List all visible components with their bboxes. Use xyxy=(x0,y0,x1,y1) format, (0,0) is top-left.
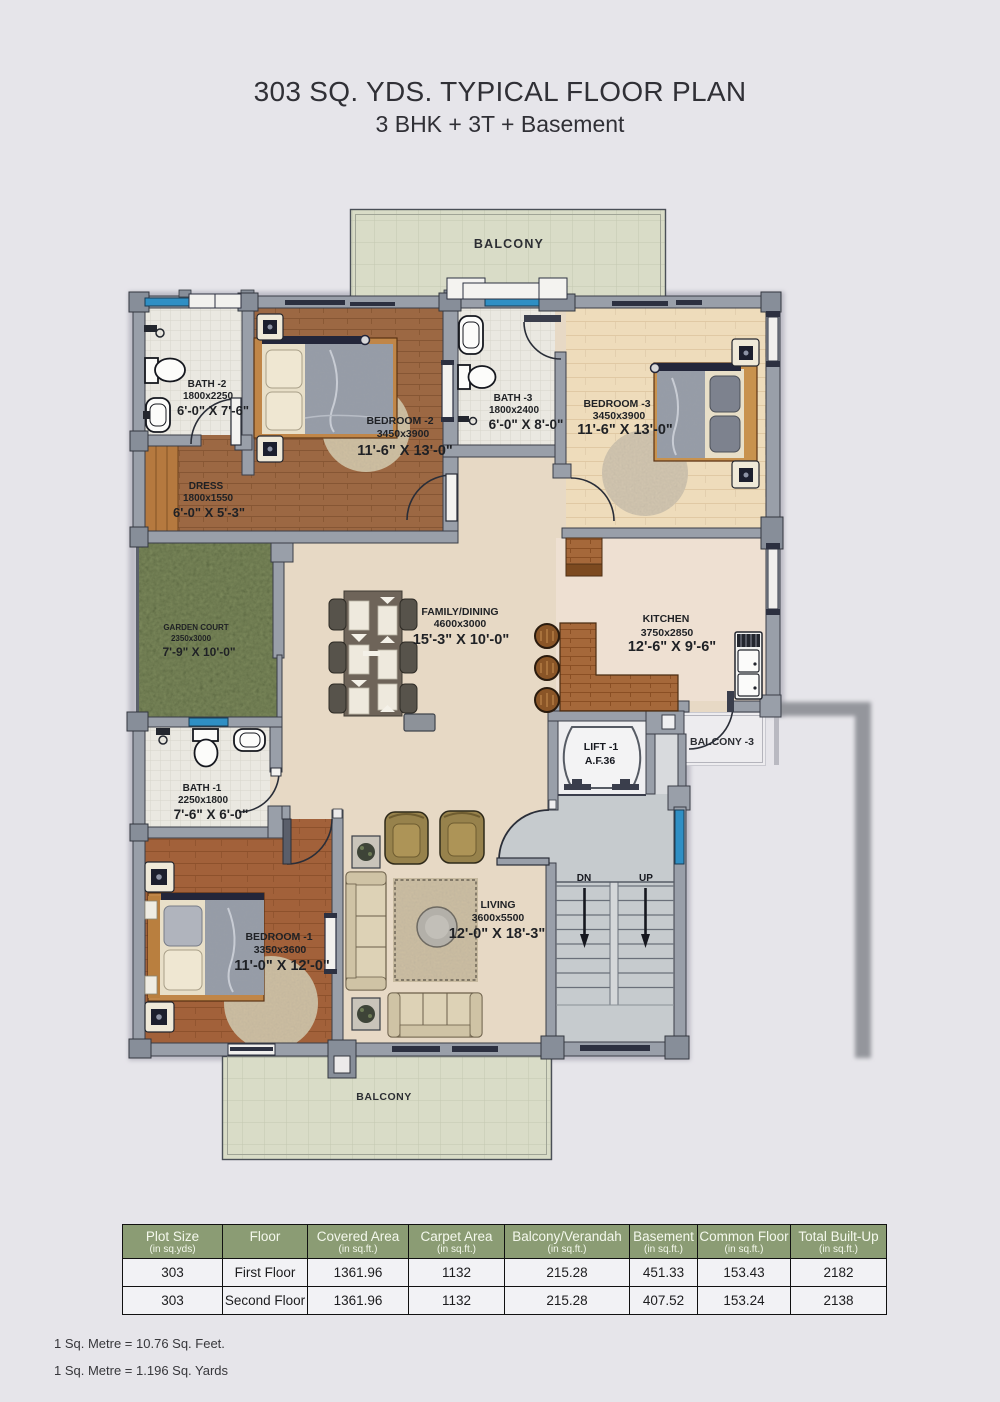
svg-text:15'-3" X 10'-0": 15'-3" X 10'-0" xyxy=(413,632,509,648)
svg-text:11'-0" X 12'-0": 11'-0" X 12'-0" xyxy=(234,958,330,974)
svg-text:3350x3600: 3350x3600 xyxy=(254,944,307,956)
svg-text:LIVING: LIVING xyxy=(480,899,515,911)
svg-text:BALCONY -3: BALCONY -3 xyxy=(690,736,754,748)
svg-text:6'-0" X 5'-3": 6'-0" X 5'-3" xyxy=(173,505,245,520)
svg-text:4600x3000: 4600x3000 xyxy=(434,618,487,630)
svg-text:2250x1800: 2250x1800 xyxy=(178,795,228,806)
svg-text:LIFT -1: LIFT -1 xyxy=(584,741,619,753)
svg-text:1800x2250: 1800x2250 xyxy=(183,391,233,402)
svg-text:3750x2850: 3750x2850 xyxy=(641,627,694,639)
svg-text:1800x1550: 1800x1550 xyxy=(183,493,233,504)
svg-text:BALCONY: BALCONY xyxy=(356,1091,411,1103)
svg-text:11'-6" X 13'-0": 11'-6" X 13'-0" xyxy=(577,422,673,438)
svg-text:FAMILY/DINING: FAMILY/DINING xyxy=(421,606,498,618)
svg-text:DRESS: DRESS xyxy=(189,481,224,492)
svg-text:3600x5500: 3600x5500 xyxy=(472,912,525,924)
svg-text:KITCHEN: KITCHEN xyxy=(643,613,690,625)
svg-text:BEDROOM -2: BEDROOM -2 xyxy=(366,415,433,427)
svg-text:BATH -1: BATH -1 xyxy=(183,783,222,794)
svg-text:1800x2400: 1800x2400 xyxy=(489,405,539,416)
svg-text:6'-0" X 7'-6": 6'-0" X 7'-6" xyxy=(177,403,249,418)
svg-text:BALCONY: BALCONY xyxy=(474,237,544,251)
svg-text:11'-6" X 13'-0": 11'-6" X 13'-0" xyxy=(357,443,453,459)
svg-text:3450x3900: 3450x3900 xyxy=(377,428,430,440)
svg-text:12'-0" X 18'-3": 12'-0" X 18'-3" xyxy=(449,926,545,942)
svg-text:2350x3000: 2350x3000 xyxy=(171,634,212,643)
svg-text:UP: UP xyxy=(639,873,653,884)
svg-text:3450x3900: 3450x3900 xyxy=(593,410,646,422)
svg-text:GARDEN COURT: GARDEN COURT xyxy=(163,623,228,632)
svg-text:BEDROOM -3: BEDROOM -3 xyxy=(583,398,650,410)
svg-text:DN: DN xyxy=(577,873,591,884)
svg-text:BATH -3: BATH -3 xyxy=(494,393,533,404)
svg-text:BEDROOM -1: BEDROOM -1 xyxy=(245,931,312,943)
svg-text:7'-6" X 6'-0": 7'-6" X 6'-0" xyxy=(174,807,249,822)
svg-text:A.F.36: A.F.36 xyxy=(585,755,616,767)
svg-text:6'-0" X 8'-0": 6'-0" X 8'-0" xyxy=(489,417,564,432)
svg-text:12'-6" X 9'-6": 12'-6" X 9'-6" xyxy=(628,639,716,655)
svg-text:7'-9" X 10'-0": 7'-9" X 10'-0" xyxy=(162,645,235,659)
svg-text:BATH -2: BATH -2 xyxy=(188,379,227,390)
